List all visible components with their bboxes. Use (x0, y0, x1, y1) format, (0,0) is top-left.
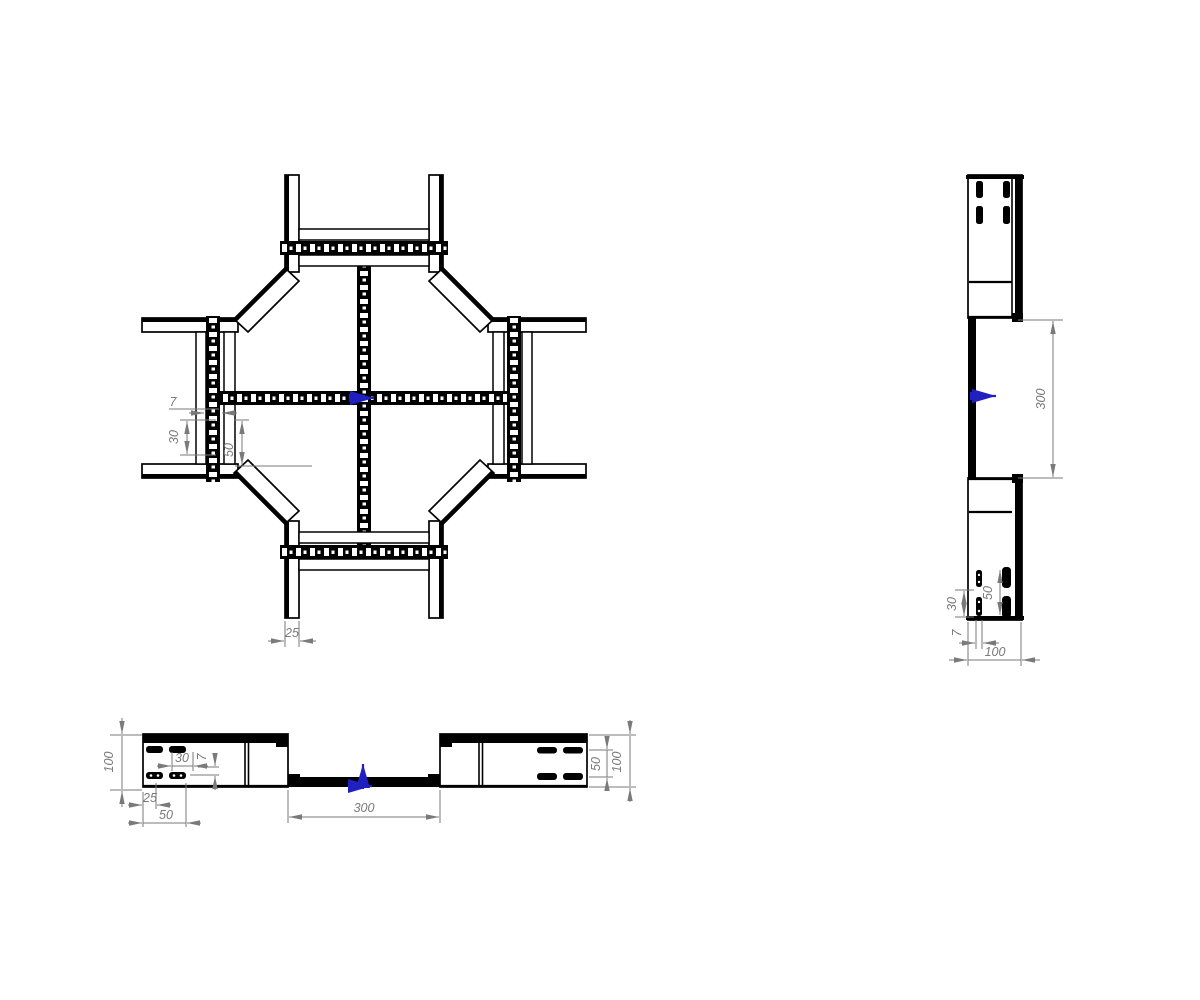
end-band-top (299, 229, 429, 240)
central-rail-vertical (357, 241, 371, 559)
end-band-left (196, 332, 206, 464)
front-right-section (440, 734, 587, 787)
dim-label-side-50: 50 (981, 586, 995, 600)
dim-label-plan-30: 30 (167, 430, 181, 444)
splice-band-top (299, 255, 429, 266)
dim-label-front-300: 300 (354, 801, 375, 815)
dim-label-side-7: 7 (950, 628, 964, 636)
dim-label-side-300: 300 (1034, 389, 1048, 410)
dim-label-plan-50: 50 (222, 443, 236, 457)
side-origin-arrow (970, 392, 996, 400)
cad-drawing: 7 30 50 25 (0, 0, 1200, 1000)
rung-bar-bottom (280, 545, 448, 559)
dim-label-plan-7: 7 (170, 395, 178, 409)
rung-bar-top (280, 241, 448, 255)
front-flange-left (143, 734, 288, 743)
side-flange-bottom (1015, 478, 1022, 618)
side-top-section (966, 175, 1024, 322)
end-band-bottom (299, 559, 429, 570)
dim-label-front-50-right: 50 (589, 757, 603, 771)
rung-bar-right (507, 316, 521, 482)
end-band-right (522, 332, 532, 464)
dim-label-front-25: 25 (142, 791, 157, 805)
dim-label-front-50-left: 50 (159, 808, 173, 822)
dim-label-front-100-right: 100 (610, 752, 624, 773)
plan-view: 7 30 50 25 (142, 175, 586, 647)
splice-band-bottom (299, 532, 429, 543)
front-origin-arrow (352, 764, 372, 789)
front-view: 100 30 7 25 50 300 (102, 718, 636, 827)
dim-label-front-7: 7 (195, 752, 209, 760)
dim-label-plan-25: 25 (284, 626, 299, 640)
dim-label-front-30: 30 (175, 751, 189, 765)
rung-bar-left (206, 316, 220, 482)
side-bottom-section (966, 474, 1024, 620)
dim-label-side-30: 30 (945, 597, 959, 611)
side-view: 300 50 30 7 100 (945, 175, 1063, 666)
cad-drawing-canvas: 7 30 50 25 (0, 0, 1200, 1000)
dim-label-side-100: 100 (985, 645, 1006, 659)
side-flange-top (1015, 177, 1022, 318)
dim-label-front-100-left: 100 (102, 752, 116, 773)
front-flange-right (440, 734, 587, 743)
